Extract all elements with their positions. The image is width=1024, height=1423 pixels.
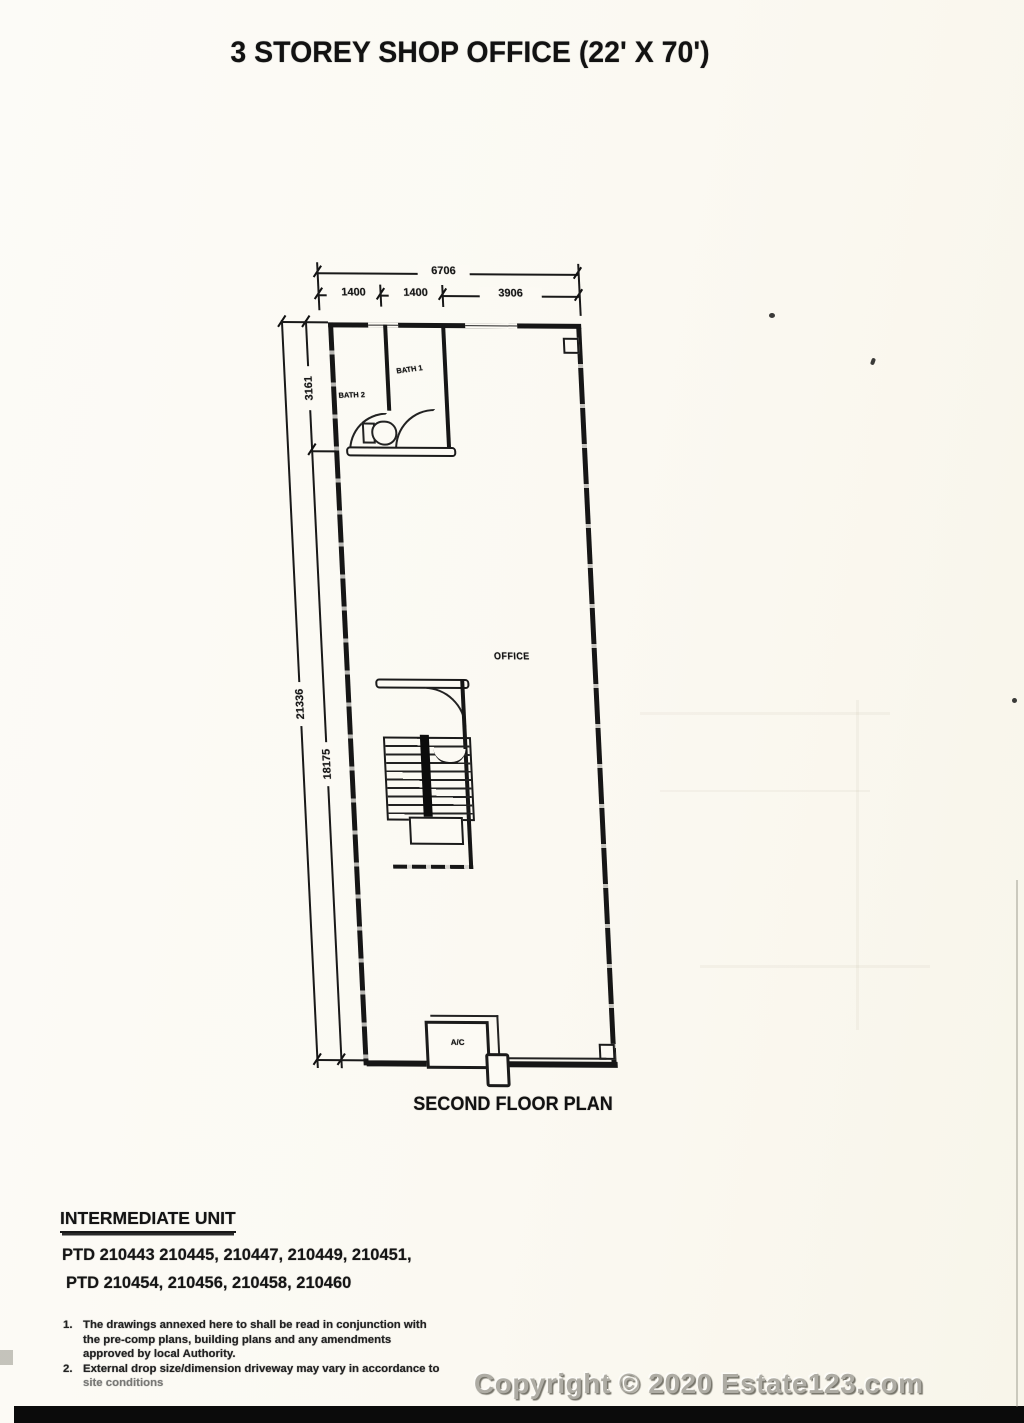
dim-label-21336: 21336: [293, 682, 307, 726]
scan-speck: [769, 313, 775, 318]
ac-unit-box: A/C: [425, 1021, 491, 1069]
door-arc-bath1: [393, 409, 437, 451]
scan-bleedthrough: [700, 965, 930, 968]
toilet-icon: [371, 421, 398, 446]
note-body: The drawings annexed here to shall be re…: [83, 1318, 427, 1362]
wall-bath-divider: [383, 325, 391, 411]
note-number: 2.: [63, 1362, 83, 1391]
note-text-line: External drop size/dimension driveway ma…: [83, 1362, 439, 1377]
window-top-2: [465, 323, 517, 328]
note-item-1: 1. The drawings annexed here to shall be…: [63, 1318, 439, 1362]
note-text-line: The drawings annexed here to shall be re…: [83, 1318, 427, 1333]
plan-caption: SECOND FLOOR PLAN: [394, 1094, 632, 1116]
scan-bleedthrough: [640, 712, 890, 715]
dim-extension-line: [281, 321, 328, 323]
page-title: 3 STOREY SHOP OFFICE (22' X 70'): [185, 36, 755, 70]
window-line: [465, 325, 517, 327]
note-text-line: the pre-comp plans, building plans and a…: [83, 1333, 427, 1348]
floor-plan-drawing: 6706 1400 1400 3906 21336 3161 18175: [270, 260, 660, 1102]
wall-stair-bottom: [393, 865, 473, 869]
note-text-line: site conditions: [83, 1376, 439, 1391]
dim-label-top-total: 6706: [417, 265, 470, 277]
ptd-line-1: PTD 210443 210445, 210447, 210449, 21045…: [62, 1246, 412, 1265]
dim-label-3161: 3161: [302, 366, 316, 410]
wall-bath-right: [441, 325, 451, 453]
scan-bleedthrough: [856, 700, 859, 1030]
note-body: External drop size/dimension driveway ma…: [83, 1362, 439, 1391]
scanned-floor-plan-page: 3 STOREY SHOP OFFICE (22' X 70') 6706 14…: [0, 0, 1024, 1423]
notes-list: 1. The drawings annexed here to shall be…: [63, 1318, 439, 1391]
wall-right: [576, 328, 616, 1066]
room-label-bath2: BATH 2: [338, 390, 365, 400]
dim-label-1400-b: 1400: [388, 287, 443, 299]
column-notch-top-right: [563, 338, 580, 354]
dim-label-3906: 3906: [479, 287, 542, 299]
note-number: 1.: [63, 1318, 83, 1362]
counter-ledge: [346, 446, 457, 457]
ac-thin-line: [506, 1057, 606, 1060]
page-edge-line: [1016, 880, 1018, 1407]
room-label-bath1: BATH 1: [396, 363, 424, 375]
staircase-landing: [409, 817, 464, 845]
dim-extension-line: [311, 450, 336, 452]
wall-top: [328, 322, 581, 329]
scan-bleedthrough: [660, 790, 870, 792]
dim-label-1400-a: 1400: [326, 286, 381, 298]
scan-edge-mark: [0, 1350, 13, 1365]
copyright-watermark: Copyright © 2020 Estate123.com: [474, 1368, 924, 1400]
scan-speck: [870, 358, 876, 366]
unit-heading: INTERMEDIATE UNIT: [60, 1208, 236, 1233]
ac-outdoor-block: [485, 1053, 511, 1087]
dim-extension-line: [316, 1059, 368, 1061]
shelf-ledge: [375, 679, 470, 690]
note-text-line: approved by local Authority.: [83, 1347, 427, 1362]
room-label-office: OFFICE: [494, 651, 530, 662]
dim-label-18175: 18175: [320, 742, 334, 786]
bottom-black-bar: [14, 1406, 1024, 1423]
scan-speck: [1012, 698, 1017, 703]
ptd-line-2: PTD 210454, 210456, 210458, 210460: [66, 1274, 351, 1293]
room-label-ac: A/C: [428, 1038, 486, 1047]
note-item-2: 2. External drop size/dimension driveway…: [63, 1362, 439, 1391]
